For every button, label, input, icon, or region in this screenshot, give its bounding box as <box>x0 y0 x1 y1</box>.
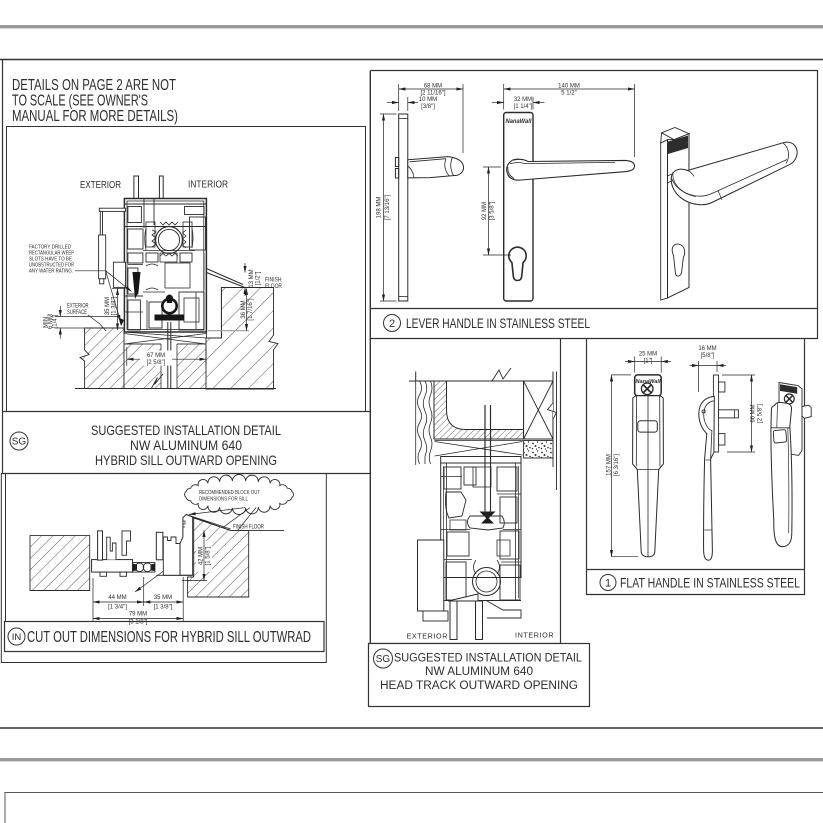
svg-text:[7 13/16"]: [7 13/16"] <box>385 194 391 220</box>
svg-text:TO SCALE (SEE OWNER'S: TO SCALE (SEE OWNER'S <box>12 93 148 110</box>
svg-text:68 MM: 68 MM <box>424 84 442 90</box>
svg-text:1: 1 <box>605 578 611 590</box>
svg-text:2: 2 <box>389 318 395 330</box>
svg-text:157 MM: 157 MM <box>607 454 613 476</box>
svg-text:MANUAL FOR MORE DETAILS): MANUAL FOR MORE DETAILS) <box>12 108 178 125</box>
svg-text:INTERIOR: INTERIOR <box>188 180 228 191</box>
svg-text:SUGGESTED INSTALLATION DETAIL: SUGGESTED INSTALLATION DETAIL <box>394 653 583 665</box>
svg-text:FINISH FLOOR: FINISH FLOOR <box>233 525 264 531</box>
svg-text:35 MM: 35 MM <box>154 595 172 601</box>
svg-text:36 MM: 36 MM <box>241 300 247 318</box>
svg-text:HEAD TRACK OUTWARD OPENING: HEAD TRACK OUTWARD OPENING <box>380 680 578 692</box>
svg-text:SURFACE: SURFACE <box>67 310 87 316</box>
svg-text:FLOOR: FLOOR <box>265 284 283 290</box>
svg-text:NW ALUMINUM 640: NW ALUMINUM 640 <box>425 666 533 678</box>
svg-text:[1 3/4"]: [1 3/4"] <box>108 605 127 611</box>
svg-text:ANY WATER RATING.: ANY WATER RATING. <box>29 269 73 275</box>
svg-text:10 MM: 10 MM <box>419 97 437 103</box>
svg-text:RECOMMENDED BLOCK OUT: RECOMMENDED BLOCK OUT <box>199 490 260 496</box>
svg-text:EXTERIOR: EXTERIOR <box>80 180 121 191</box>
svg-text:[1/4"]: [1/4"] <box>53 314 59 328</box>
svg-text:[1 1/4"]: [1 1/4"] <box>514 104 533 110</box>
svg-text:[3 5/8"]: [3 5/8"] <box>490 201 496 220</box>
svg-text:25 MM: 25 MM <box>639 352 657 358</box>
svg-text:140 MM: 140 MM <box>558 84 580 90</box>
svg-text:[2 5/8"]: [2 5/8"] <box>758 404 764 423</box>
svg-text:EXTERIOR: EXTERIOR <box>407 632 449 641</box>
svg-text:[2 5/8"]: [2 5/8"] <box>147 360 166 366</box>
svg-text:SG: SG <box>376 654 391 665</box>
svg-text:[1 5/8"]: [1 5/8"] <box>206 546 212 565</box>
svg-text:[3 1/8"]: [3 1/8"] <box>129 620 148 626</box>
svg-text:LEVER HANDLE IN STAINLESS STEE: LEVER HANDLE IN STAINLESS STEEL <box>406 315 590 331</box>
svg-text:NW ALUMINUM 640: NW ALUMINUM 640 <box>130 437 242 453</box>
svg-text:[1 3/8"]: [1 3/8"] <box>112 296 118 315</box>
svg-text:67 MM: 67 MM <box>147 353 165 359</box>
svg-text:SG: SG <box>12 437 27 448</box>
svg-text:198 MM: 198 MM <box>377 197 383 219</box>
svg-text:35 MM: 35 MM <box>105 297 111 315</box>
svg-text:DETAILS ON PAGE 2 ARE NOT: DETAILS ON PAGE 2 ARE NOT <box>12 77 176 94</box>
svg-text:42 MM: 42 MM <box>199 547 205 565</box>
svg-text:INTERIOR: INTERIOR <box>515 631 554 640</box>
svg-text:CUT OUT DIMENSIONS FOR HYBRID: CUT OUT DIMENSIONS FOR HYBRID SILL OUTWR… <box>27 629 311 646</box>
svg-text:[2 11/16"]: [2 11/16"] <box>420 91 445 97</box>
svg-text:[6 3/16"]: [6 3/16"] <box>614 454 620 476</box>
svg-text:5 1/2": 5 1/2" <box>561 91 576 97</box>
svg-text:DIMENSIONS FOR SILL: DIMENSIONS FOR SILL <box>199 496 248 502</box>
svg-text:NanaWall: NanaWall <box>636 379 661 385</box>
svg-text:44 MM: 44 MM <box>108 595 126 601</box>
svg-text:16 MM: 16 MM <box>698 346 716 352</box>
svg-text:32 MM: 32 MM <box>514 97 532 103</box>
svg-text:13 MM: 13 MM <box>249 269 255 287</box>
svg-text:[3/8"]: [3/8"] <box>421 104 435 110</box>
svg-text:NanaWall: NanaWall <box>506 118 532 125</box>
svg-text:92 MM: 92 MM <box>482 202 488 220</box>
svg-text:[1"]: [1"] <box>644 359 653 365</box>
svg-text:[1 3/8"]: [1 3/8"] <box>154 605 173 611</box>
svg-text:HYBRID SILL OUTWARD OPENING: HYBRID SILL OUTWARD OPENING <box>95 452 277 468</box>
svg-text:FLAT HANDLE IN STAINLESS STEEL: FLAT HANDLE IN STAINLESS STEEL <box>620 575 800 591</box>
svg-text:SUGGESTED INSTALLATION DETAIL: SUGGESTED INSTALLATION DETAIL <box>91 422 281 438</box>
svg-text:FINISH: FINISH <box>265 278 282 284</box>
svg-text:[1 7/16"]: [1 7/16"] <box>248 298 254 320</box>
svg-text:EXTERIOR: EXTERIOR <box>67 304 89 310</box>
svg-text:79 MM: 79 MM <box>129 612 147 618</box>
svg-text:[1/2"]: [1/2"] <box>256 271 262 285</box>
svg-text:[5/8"]: [5/8"] <box>701 353 715 359</box>
svg-text:66 MM: 66 MM <box>751 404 757 422</box>
svg-text:IN: IN <box>12 632 22 643</box>
